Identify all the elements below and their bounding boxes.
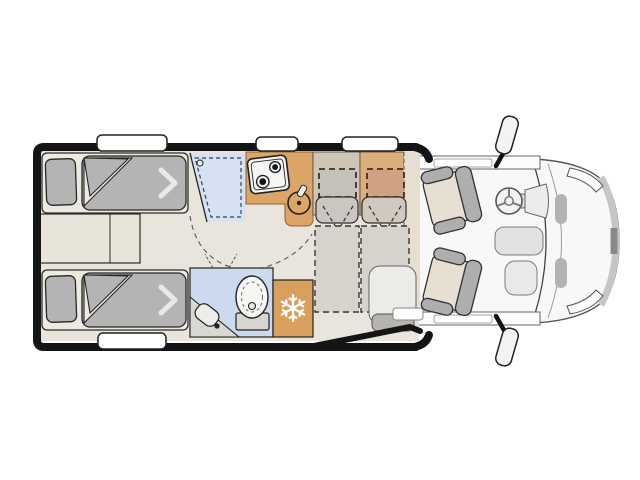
toilet-flush-icon — [249, 303, 256, 310]
hood-vent-bottom — [555, 258, 567, 288]
window-top-dinette — [342, 137, 398, 151]
window-top-kitchen — [256, 137, 298, 151]
cab-door-window-bottom — [434, 315, 492, 323]
pillow — [45, 158, 77, 205]
driver-cab — [416, 115, 619, 368]
single-bed-top — [42, 153, 188, 213]
cab-side-bottom — [416, 312, 540, 325]
seating-footprint-left — [315, 226, 359, 312]
window-bottom-bedroom — [98, 333, 166, 349]
between-beds-cabinet — [38, 214, 140, 263]
seat-base-right — [362, 197, 406, 223]
floorplan-page: ❄ — [0, 0, 640, 480]
snowflake-icon: ❄ — [277, 287, 309, 331]
single-bed-bottom — [42, 270, 188, 330]
seat-base-left — [316, 197, 358, 223]
cab-door-window-top — [434, 159, 492, 167]
window-top-bedroom — [97, 135, 167, 151]
driver-airbag — [525, 184, 549, 218]
pillow — [45, 275, 77, 322]
hob — [247, 155, 290, 194]
shower-drain-icon — [197, 160, 203, 166]
console-pad — [505, 261, 537, 295]
backrest-cushion-right — [367, 169, 404, 197]
floorplan-canvas: ❄ — [0, 0, 640, 480]
basin-faucet-icon — [214, 323, 219, 328]
toilet — [236, 276, 269, 330]
hood-vent-top — [555, 194, 567, 224]
freezer-unit: ❄ — [273, 280, 313, 337]
backrest-cushion-left — [319, 169, 356, 197]
cab-side-top — [416, 156, 540, 169]
door-sill — [393, 308, 423, 320]
center-console — [495, 227, 543, 255]
